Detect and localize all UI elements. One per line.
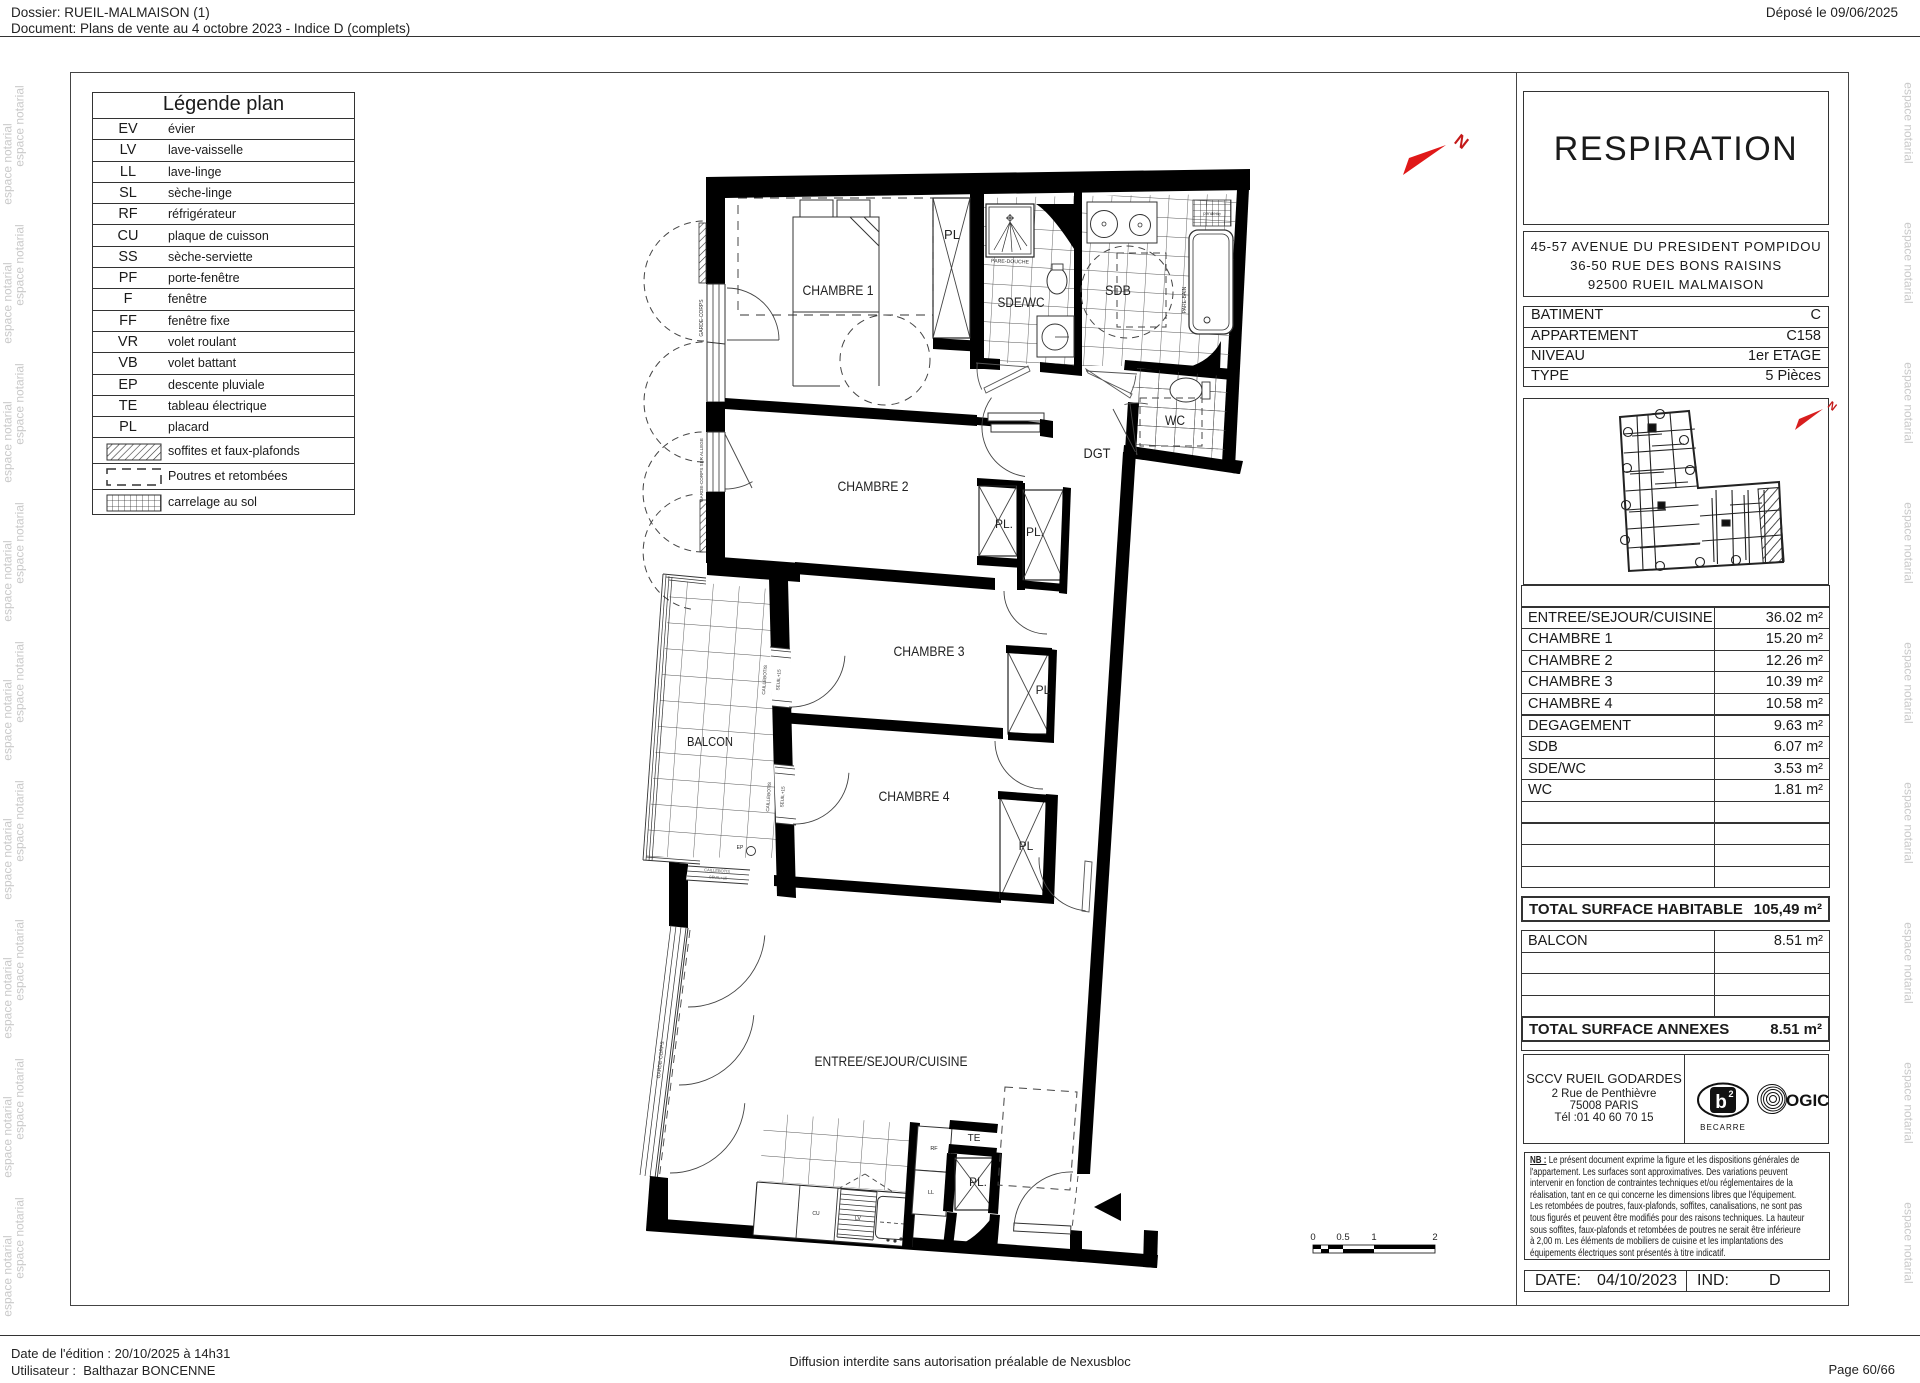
svg-text:BALCON: BALCON	[687, 735, 733, 749]
svg-text:PL: PL	[1036, 683, 1051, 697]
svg-text:PL: PL	[1019, 839, 1034, 853]
svg-text:PARE-BAIN: PARE-BAIN	[1182, 286, 1188, 313]
svg-text:CU: CU	[812, 1211, 820, 1217]
svg-text:RF: RF	[930, 1146, 938, 1152]
svg-text:PL.: PL.	[969, 1175, 987, 1189]
svg-text:ENTREE/SEJOUR/CUISINE: ENTREE/SEJOUR/CUISINE	[815, 1053, 968, 1069]
svg-text:CHAMBRE 2: CHAMBRE 2	[838, 478, 909, 494]
svg-text:CHAMBRE 1: CHAMBRE 1	[803, 282, 874, 298]
svg-text:N: N	[1825, 399, 1839, 413]
svg-text:SDB: SDB	[1105, 283, 1131, 298]
svg-text:DGT: DGT	[1084, 446, 1111, 461]
svg-text:0.5: 0.5	[1336, 1232, 1349, 1243]
svg-text:GARDE-CORPS SER ALLEGE: GARDE-CORPS SER ALLEGE	[699, 438, 704, 502]
svg-text:CHAMBRE 4: CHAMBRE 4	[879, 788, 950, 804]
svg-text:N: N	[1451, 130, 1472, 153]
svg-text:TE: TE	[968, 1133, 981, 1144]
svg-text:0: 0	[1310, 1232, 1315, 1243]
svg-text:GARDE-CORPS: GARDE-CORPS	[699, 299, 705, 337]
svg-text:SDE/WC: SDE/WC	[998, 295, 1045, 310]
svg-text:PL: PL	[944, 227, 960, 242]
svg-text:penderie: penderie	[1203, 211, 1221, 217]
svg-text:PL.: PL.	[995, 517, 1013, 531]
svg-text:2: 2	[1432, 1232, 1437, 1243]
svg-text:EP: EP	[737, 845, 744, 851]
svg-text:PL.: PL.	[1026, 525, 1044, 539]
svg-text:CHAMBRE 3: CHAMBRE 3	[894, 643, 965, 659]
svg-text:1: 1	[1371, 1232, 1376, 1243]
svg-text:WC: WC	[1165, 413, 1185, 428]
svg-text:LL: LL	[928, 1190, 934, 1196]
svg-text:LV: LV	[855, 1216, 861, 1222]
